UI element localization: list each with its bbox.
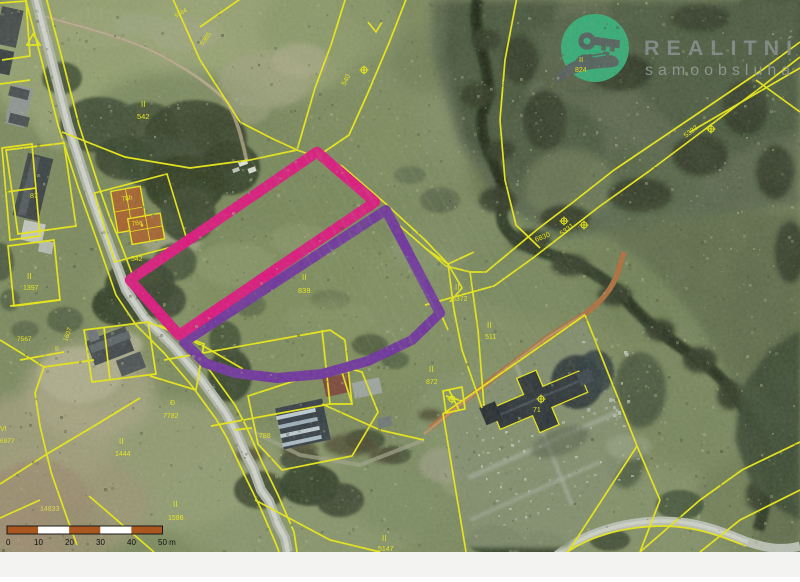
svg-text:40: 40 bbox=[127, 538, 136, 547]
svg-text:50 m: 50 m bbox=[158, 538, 176, 547]
svg-text:10: 10 bbox=[34, 538, 43, 547]
svg-text:0: 0 bbox=[6, 538, 11, 547]
svg-text:20: 20 bbox=[65, 538, 74, 547]
svg-text:30: 30 bbox=[96, 538, 105, 547]
